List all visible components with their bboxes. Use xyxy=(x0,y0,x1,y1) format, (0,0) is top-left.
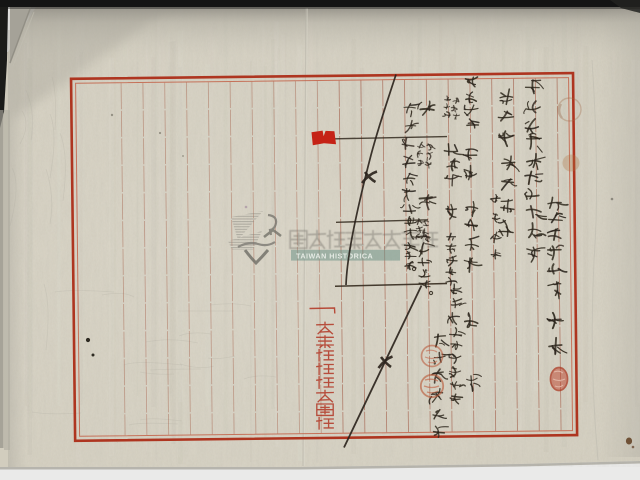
svg-text:TAIWAN HISTORICA: TAIWAN HISTORICA xyxy=(296,251,373,260)
